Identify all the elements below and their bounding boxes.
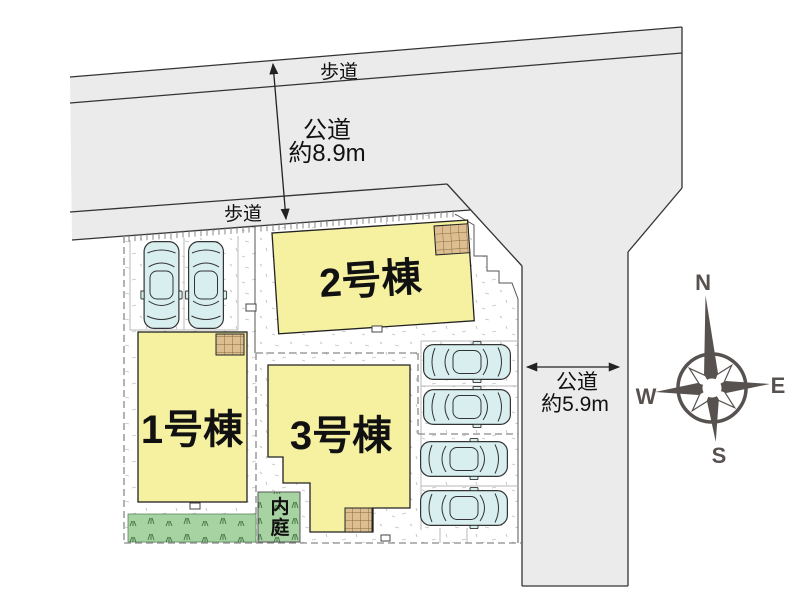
compass-label-s: S: [712, 443, 727, 468]
car-icon: [424, 341, 511, 382]
compass-needles: [649, 291, 774, 446]
building-3-balcony-hatch: [345, 508, 372, 532]
compass-label-w: W: [636, 384, 657, 409]
site-plan: 内 庭 1号棟 2号棟 3号棟 歩道 歩道 公道 約8.9m: [0, 0, 800, 600]
building-3-label: 3号棟: [290, 414, 393, 458]
right-road-type-label: 公道: [556, 371, 598, 394]
building-1-balcony-hatch: [216, 334, 244, 355]
building-2-label: 2号棟: [318, 255, 424, 306]
inner-garden-label-char2: 庭: [270, 516, 289, 539]
building-1: 1号棟: [138, 332, 247, 502]
car-icon: [424, 386, 511, 427]
top-road-width-label: 約8.9m: [288, 140, 365, 167]
right-road-width-label: 約5.9m: [541, 393, 609, 416]
inner-garden: 内 庭: [258, 492, 300, 542]
car-icon: [141, 242, 182, 329]
site-plan-canvas: 内 庭 1号棟 2号棟 3号棟 歩道 歩道 公道 約8.9m: [0, 0, 800, 600]
garden-strip: [128, 514, 256, 542]
sidewalk-top-label: 歩道: [320, 61, 358, 83]
car-icon: [185, 242, 226, 329]
compass-label-e: E: [771, 373, 786, 398]
inner-garden-label-char1: 内: [270, 495, 289, 518]
building-1-label: 1号棟: [141, 408, 244, 452]
compass-label-n: N: [695, 270, 711, 295]
sidewalk-bottom-label: 歩道: [224, 203, 262, 225]
compass-rose: N E W S: [636, 270, 786, 468]
car-icon: [421, 438, 508, 479]
building-2-balcony-hatch: [434, 224, 470, 255]
car-icon: [421, 487, 508, 528]
